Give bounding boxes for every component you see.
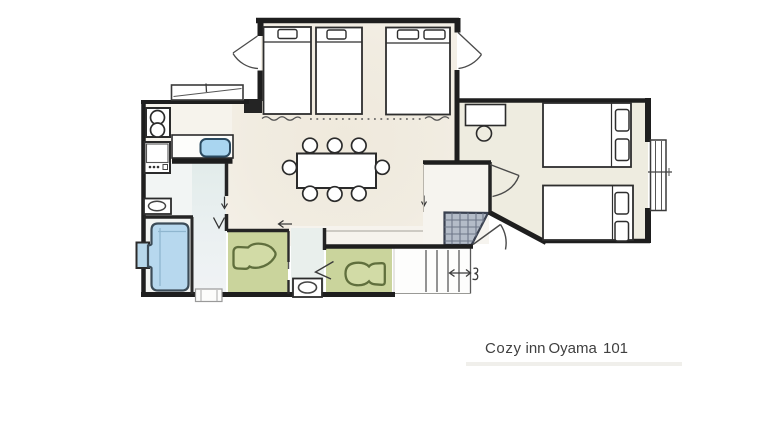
svg-text:inn: inn xyxy=(526,340,546,357)
svg-text:101: 101 xyxy=(603,340,628,357)
svg-text:Oyama: Oyama xyxy=(549,340,598,357)
svg-text:Cozy: Cozy xyxy=(485,340,522,357)
